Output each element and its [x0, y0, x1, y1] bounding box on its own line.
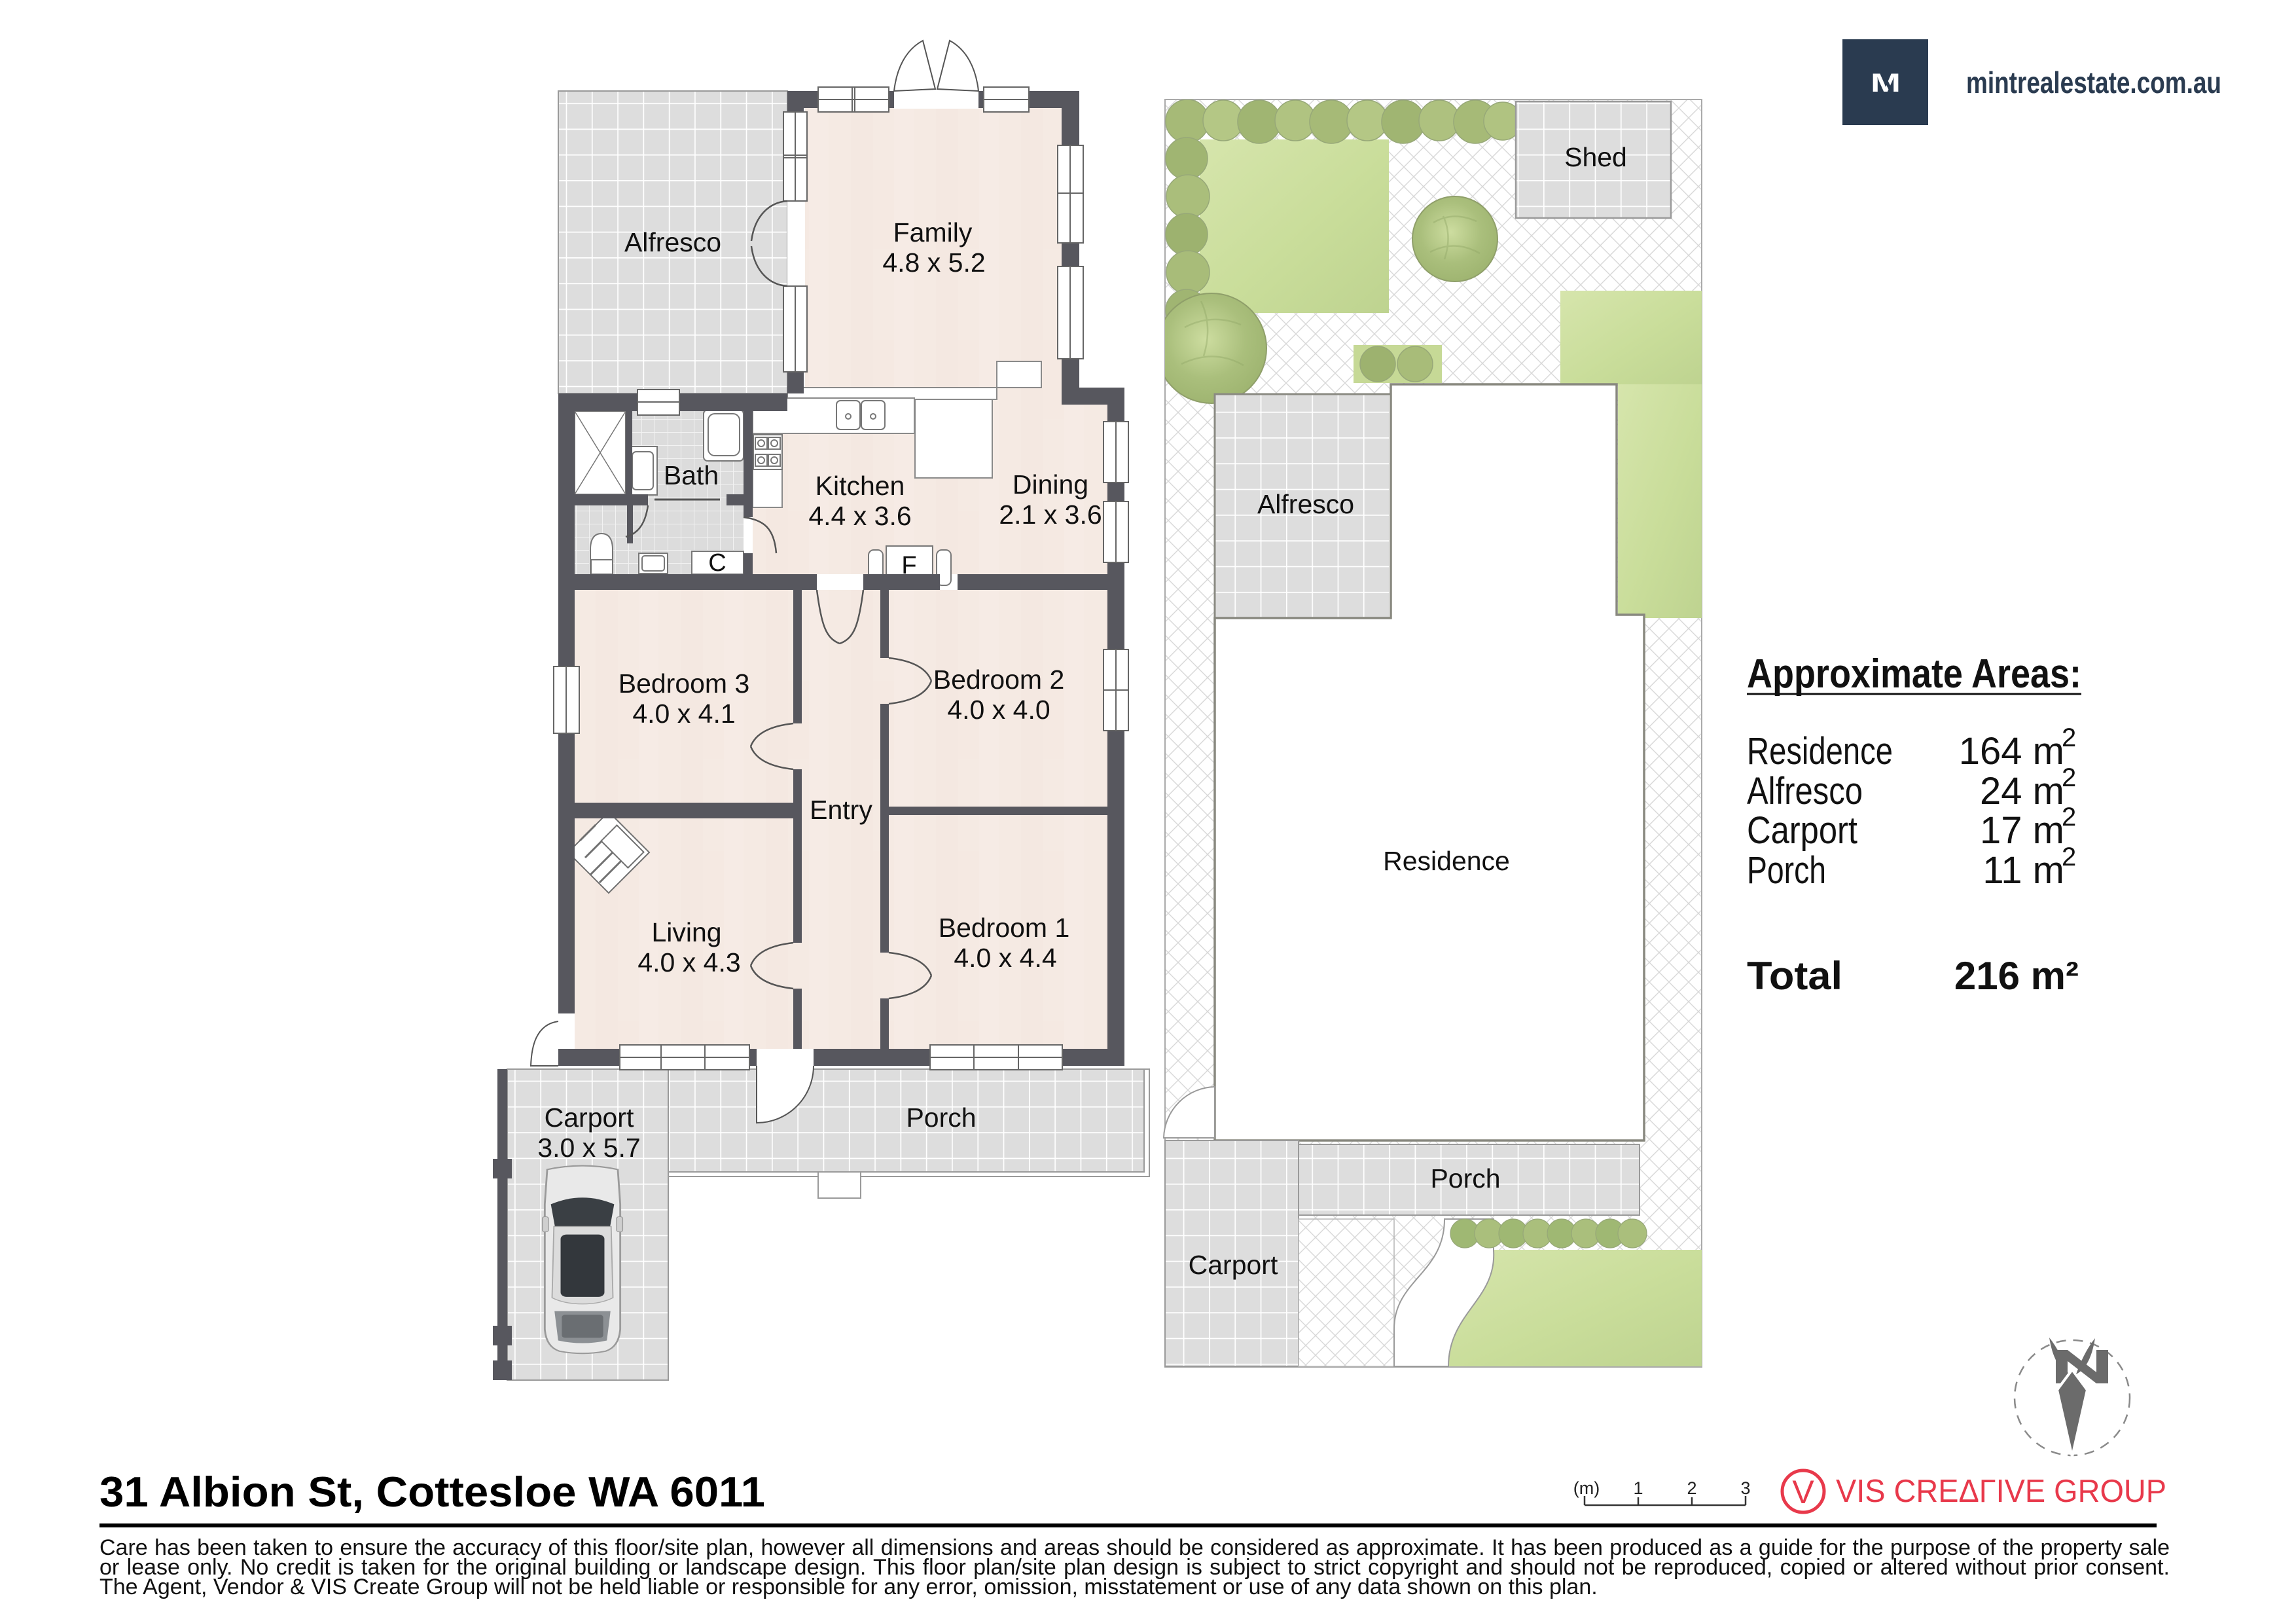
svg-text:2: 2 [2062, 843, 2076, 871]
svg-text:Total: Total [1747, 954, 1842, 998]
svg-text:3.0 x 5.7: 3.0 x 5.7 [537, 1133, 640, 1163]
svg-text:24 m: 24 m [1980, 770, 2064, 812]
svg-text:Residence: Residence [1383, 846, 1510, 876]
svg-text:Bedroom 2: Bedroom 2 [933, 665, 1065, 695]
svg-text:Carport: Carport [1747, 809, 1857, 852]
svg-text:Alfresco: Alfresco [1257, 489, 1354, 519]
svg-text:Kitchen: Kitchen [816, 471, 905, 501]
svg-text:Dining: Dining [1013, 469, 1088, 500]
svg-text:3: 3 [1740, 1478, 1750, 1498]
svg-text:mintrealestate.com.au: mintrealestate.com.au [1966, 65, 2221, 100]
svg-text:2: 2 [2062, 803, 2076, 831]
svg-text:Entry: Entry [810, 795, 872, 825]
svg-text:(m): (m) [1573, 1478, 1600, 1498]
svg-text:2: 2 [2062, 763, 2076, 792]
svg-text:Carport: Carport [1189, 1250, 1278, 1280]
svg-text:4.0 x 4.0: 4.0 x 4.0 [947, 695, 1050, 725]
svg-text:4.8 x 5.2: 4.8 x 5.2 [882, 247, 985, 278]
svg-text:Bedroom 3: Bedroom 3 [619, 668, 750, 699]
svg-text:216 m²: 216 m² [1954, 954, 2079, 998]
svg-text:Porch: Porch [906, 1103, 976, 1133]
svg-text:Residence: Residence [1747, 730, 1893, 773]
svg-text:1: 1 [1633, 1478, 1643, 1498]
svg-text:F: F [901, 552, 916, 579]
svg-text:Bedroom 1: Bedroom 1 [939, 913, 1070, 943]
svg-text:VIS CREΔΓIVE GROUP: VIS CREΔΓIVE GROUP [1836, 1474, 2166, 1509]
svg-text:2: 2 [1687, 1478, 1696, 1498]
svg-text:4.0 x 4.4: 4.0 x 4.4 [954, 943, 1056, 973]
svg-text:Family: Family [893, 217, 973, 247]
svg-text:Approximate Areas:: Approximate Areas: [1747, 651, 2081, 697]
svg-text:C: C [708, 549, 726, 577]
svg-text:2: 2 [2062, 723, 2076, 752]
svg-text:11 m: 11 m [1982, 849, 2064, 892]
svg-text:17 m: 17 m [1980, 809, 2064, 852]
svg-text:Porch: Porch [1430, 1163, 1500, 1194]
svg-text:31 Albion St, Cottesloe WA 601: 31 Albion St, Cottesloe WA 6011 [99, 1468, 765, 1516]
svg-text:Porch: Porch [1747, 849, 1826, 892]
svg-text:Bath: Bath [664, 460, 719, 490]
svg-text:4.0 x 4.3: 4.0 x 4.3 [637, 947, 740, 977]
svg-text:2.1 x 3.6: 2.1 x 3.6 [999, 500, 1102, 530]
svg-text:4.4 x 3.6: 4.4 x 3.6 [808, 501, 911, 531]
svg-text:Alfresco: Alfresco [1747, 770, 1863, 812]
svg-text:Shed: Shed [1564, 142, 1627, 172]
svg-text:4.0 x 4.1: 4.0 x 4.1 [632, 699, 735, 729]
svg-text:V: V [1792, 1474, 1814, 1510]
svg-text:Alfresco: Alfresco [624, 227, 721, 257]
svg-text:Carport: Carport [545, 1103, 634, 1133]
svg-text:164 m: 164 m [1959, 730, 2064, 773]
svg-text:Living: Living [651, 917, 721, 947]
